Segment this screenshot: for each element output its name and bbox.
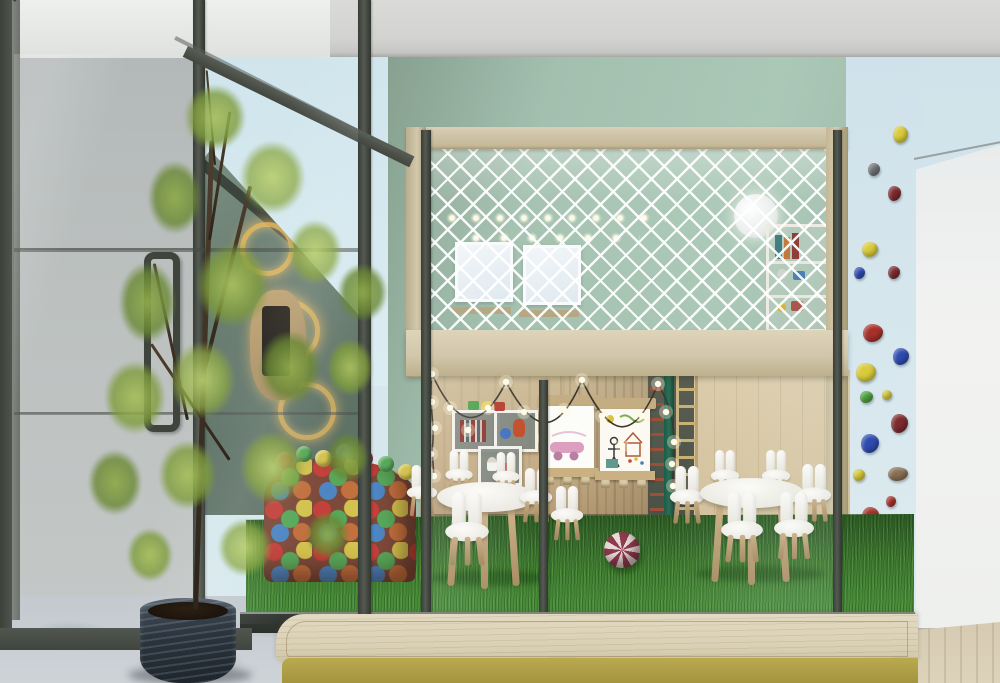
climbing-hold — [862, 242, 878, 257]
platform-bench-face — [282, 658, 918, 683]
platform-groove — [286, 621, 908, 657]
mezzanine-top-beam — [406, 127, 848, 149]
alcove-wood-floor — [912, 622, 1000, 683]
climbing-hold — [882, 390, 892, 400]
glass-mullion — [539, 380, 548, 630]
glass-reflection-sheen — [14, 54, 358, 624]
climbing-hold — [854, 267, 865, 279]
door-frame-left-edge — [0, 0, 12, 628]
climbing-hold — [893, 126, 908, 143]
climbing-hold — [863, 324, 883, 342]
climbing-hold — [860, 391, 873, 403]
climbing-hold — [891, 414, 908, 433]
climbing-hold — [893, 348, 909, 365]
planter-soil — [148, 602, 228, 620]
climbing-hold — [888, 266, 900, 279]
climbing-hold — [886, 496, 896, 507]
playroom-render — [0, 0, 1000, 683]
pit-ball — [378, 456, 394, 472]
safety-net — [424, 147, 828, 335]
platform-bench-top — [276, 614, 918, 662]
climbing-hold — [856, 363, 876, 382]
glass-sheen — [431, 376, 833, 612]
glass-mullion — [421, 130, 431, 632]
glass-mullion — [833, 130, 842, 632]
ceiling-gray-band — [330, 0, 1000, 57]
climbing-hold — [888, 186, 901, 201]
white-wall-right — [916, 140, 1000, 630]
courtyard-glass-corner — [358, 0, 371, 648]
climbing-hold — [861, 434, 879, 453]
tree-planter — [140, 598, 236, 683]
climbing-hold — [853, 469, 865, 481]
ceiling-white — [0, 0, 345, 58]
climbing-hold — [868, 163, 880, 176]
climbing-hold — [888, 467, 908, 481]
